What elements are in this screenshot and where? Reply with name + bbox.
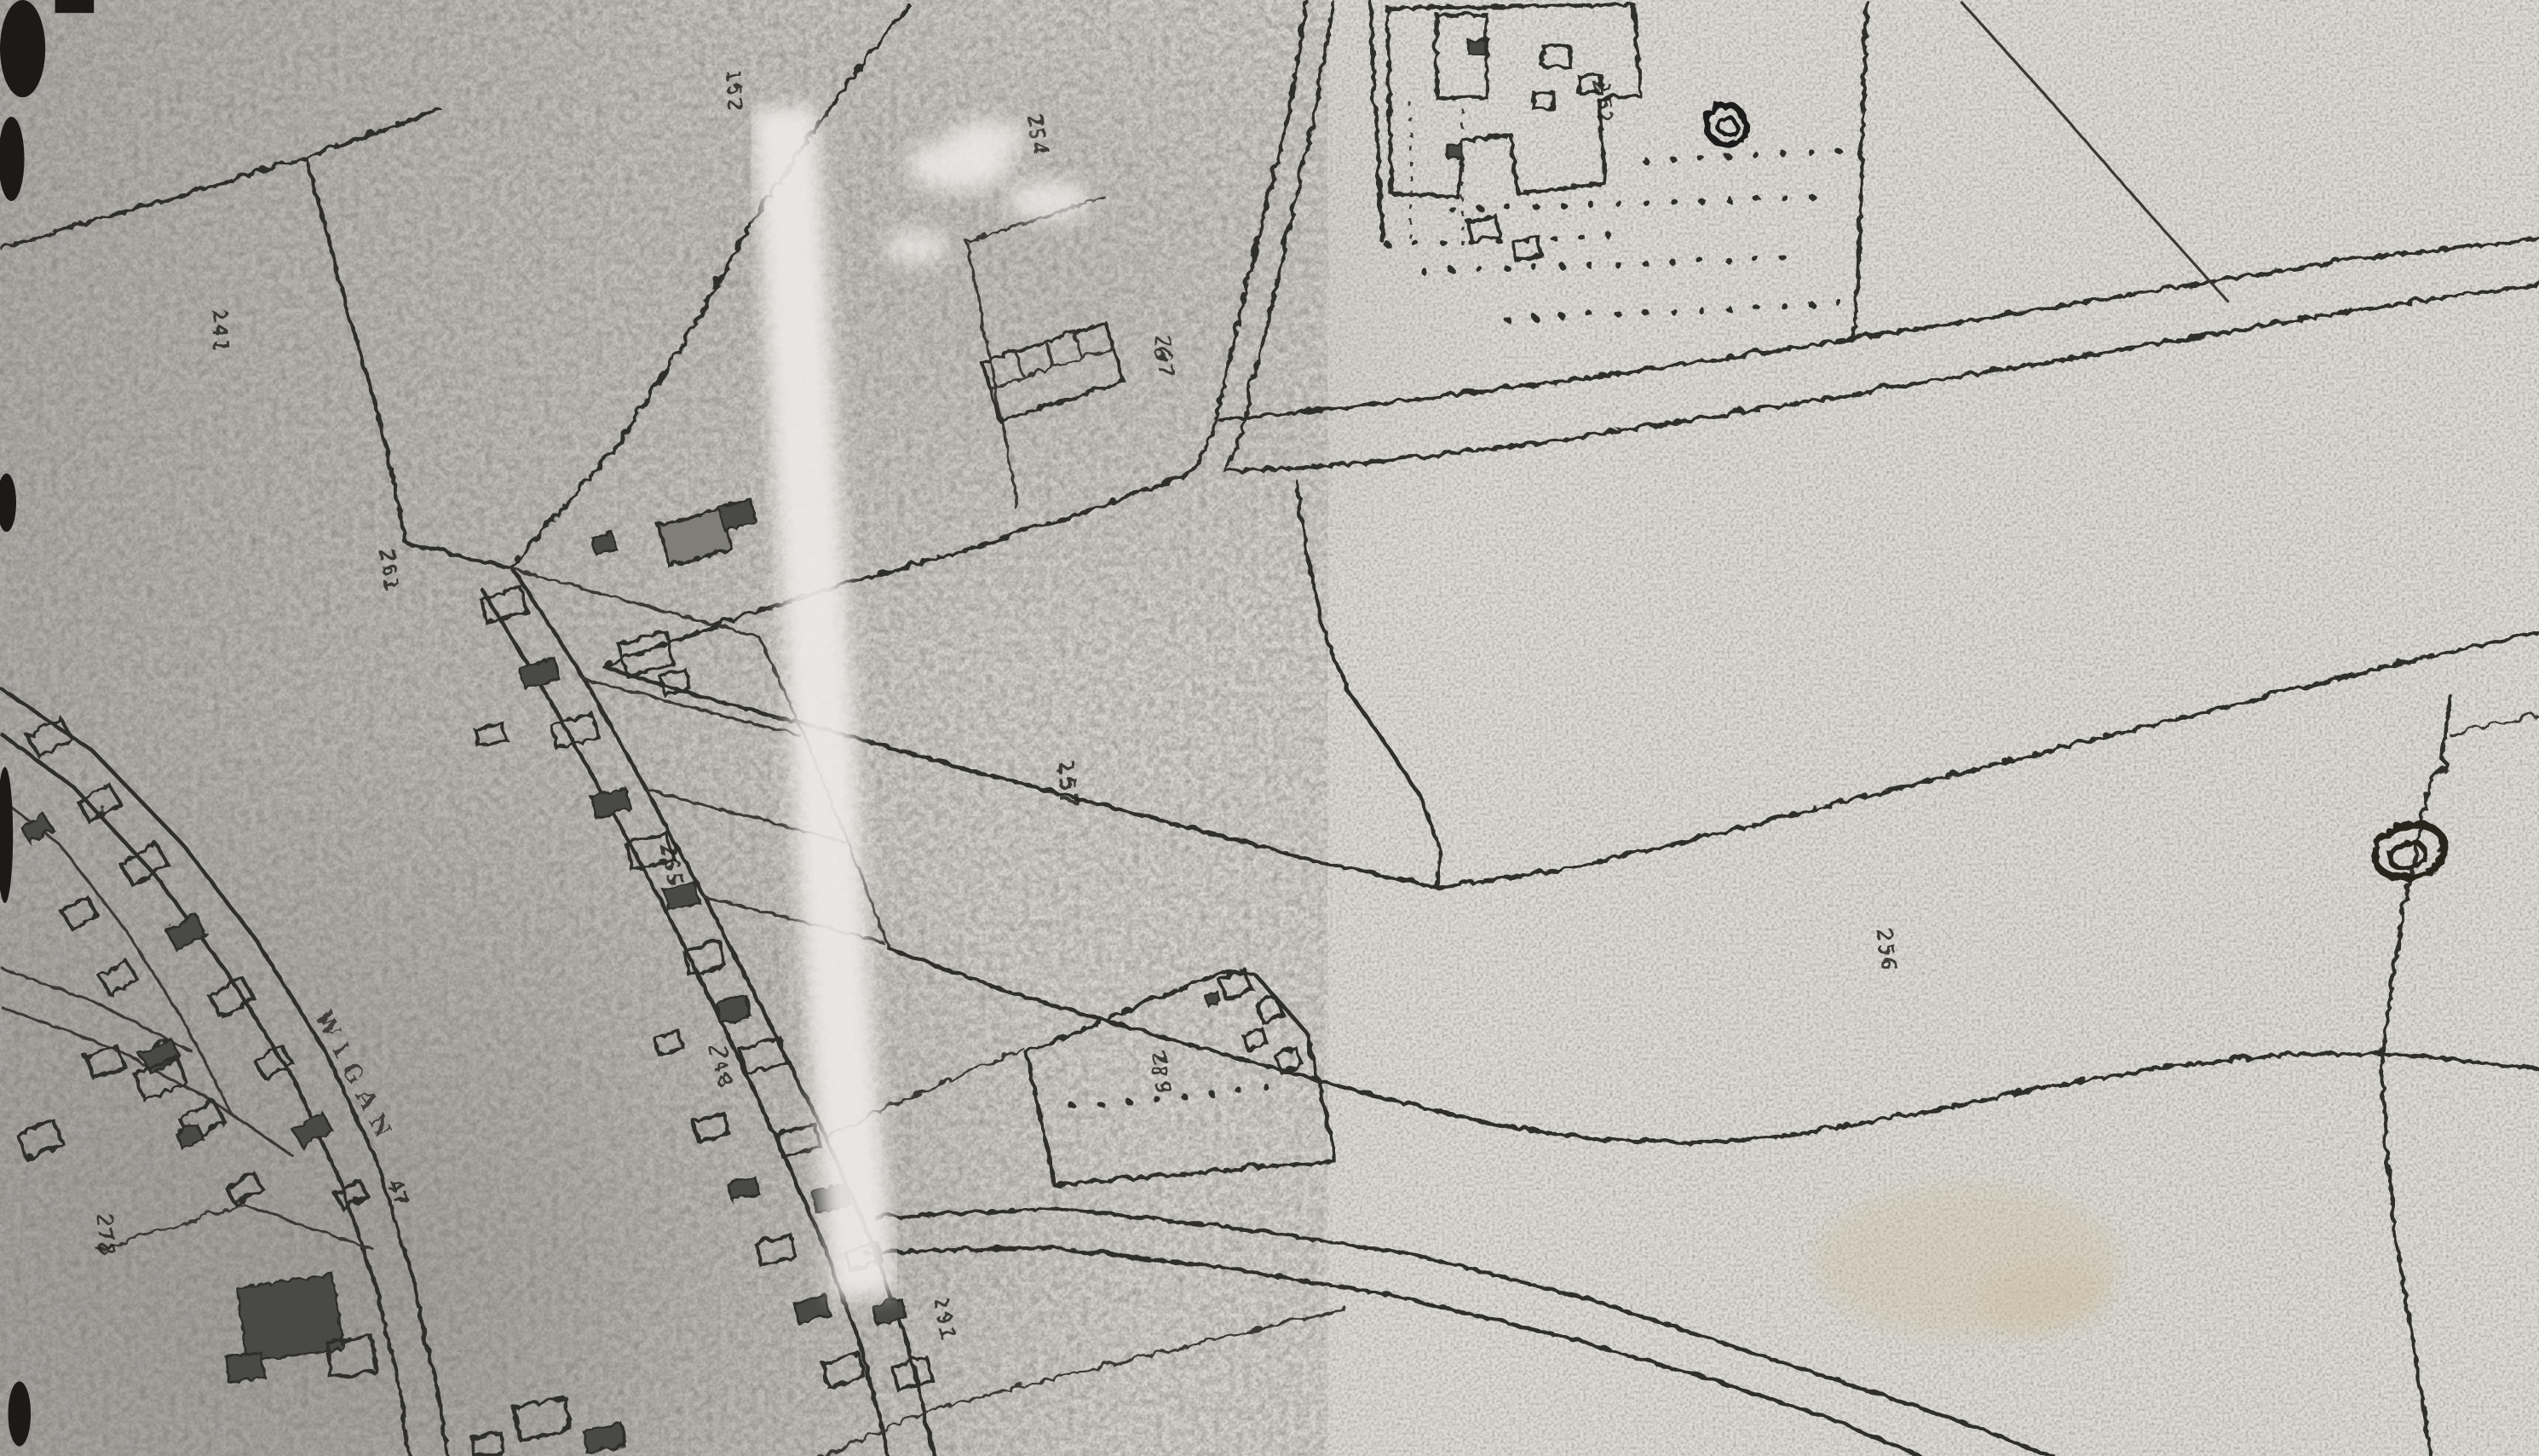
building [1446, 142, 1460, 155]
left-coarse-grain [0, 0, 1327, 1456]
parcel-number: 278 [90, 1211, 118, 1256]
building [223, 1350, 262, 1380]
parcel-number: 256 [1870, 925, 1899, 970]
sepia-stain [1978, 1262, 2108, 1333]
building [1467, 39, 1483, 52]
white-blotch [1007, 180, 1091, 222]
building [590, 530, 614, 553]
scanned-map: 152 254 267 241 261 257 265 256 252 248 … [0, 0, 2539, 1456]
white-blotch [884, 228, 949, 264]
parcel-number: 241 [205, 308, 232, 351]
parcel-number: 267 [1148, 332, 1177, 377]
parcel-number: 152 [719, 66, 746, 111]
parcel-number: 257 [1050, 757, 1081, 808]
white-blotch [949, 120, 1027, 159]
parcel-number: 252 [1588, 80, 1615, 124]
parcel-number: 289 [1144, 1049, 1173, 1094]
